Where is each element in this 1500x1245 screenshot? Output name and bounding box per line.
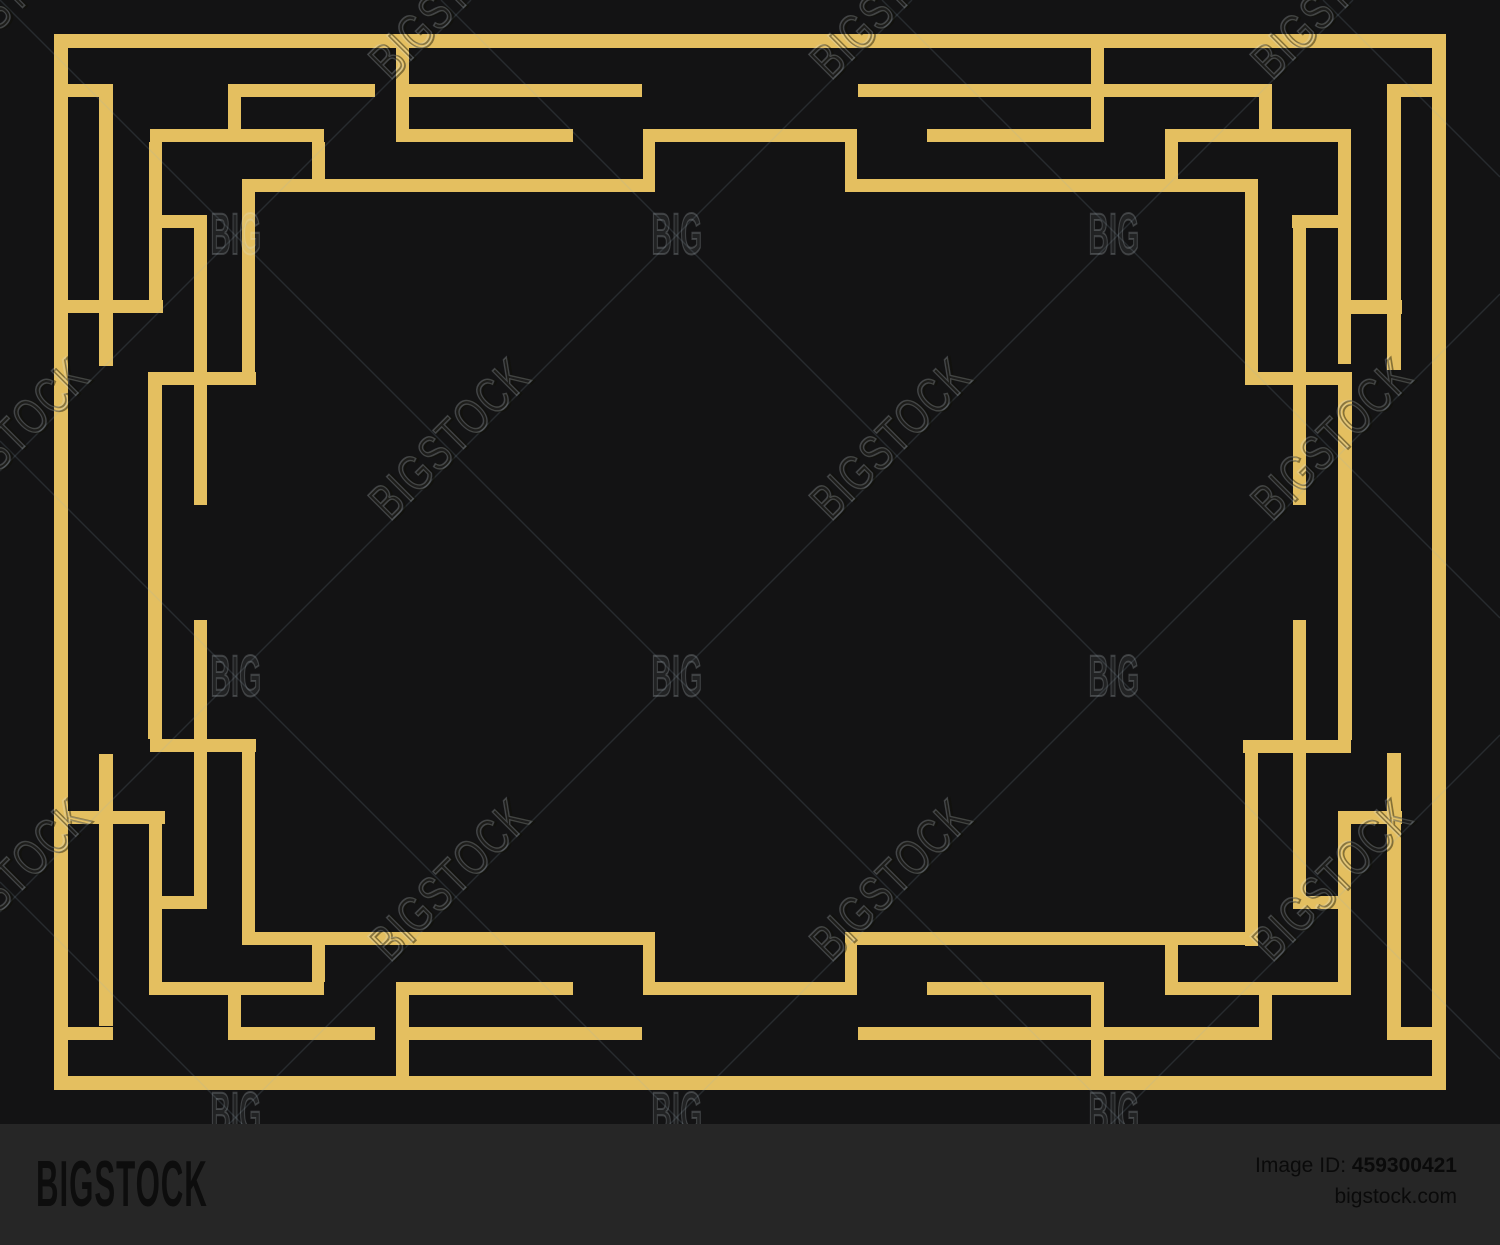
- svg-text:BIGSTOCK: BIGSTOCK: [359, 0, 541, 89]
- svg-text:BIGSTOCK: BIGSTOCK: [800, 348, 982, 530]
- svg-text:BIG: BIG: [652, 644, 703, 709]
- svg-text:BIGSTOCK: BIGSTOCK: [0, 0, 100, 89]
- svg-text:BIGSTOCK: BIGSTOCK: [1241, 0, 1423, 89]
- svg-text:BIGSTOCK: BIGSTOCK: [359, 348, 541, 530]
- svg-text:BIG: BIG: [211, 644, 262, 709]
- svg-text:BIG: BIG: [652, 202, 703, 267]
- svg-text:BIG: BIG: [1089, 644, 1140, 709]
- svg-text:BIGSTOCK: BIGSTOCK: [1241, 789, 1423, 971]
- svg-text:BIGSTOCK: BIGSTOCK: [800, 789, 982, 971]
- svg-text:BIGSTOCK: BIGSTOCK: [359, 789, 541, 971]
- svg-text:BIG: BIG: [1089, 202, 1140, 267]
- svg-text:BIGSTOCK: BIGSTOCK: [800, 0, 982, 89]
- svg-text:BIGSTOCK: BIGSTOCK: [1241, 348, 1423, 530]
- svg-text:BIG: BIG: [211, 202, 262, 267]
